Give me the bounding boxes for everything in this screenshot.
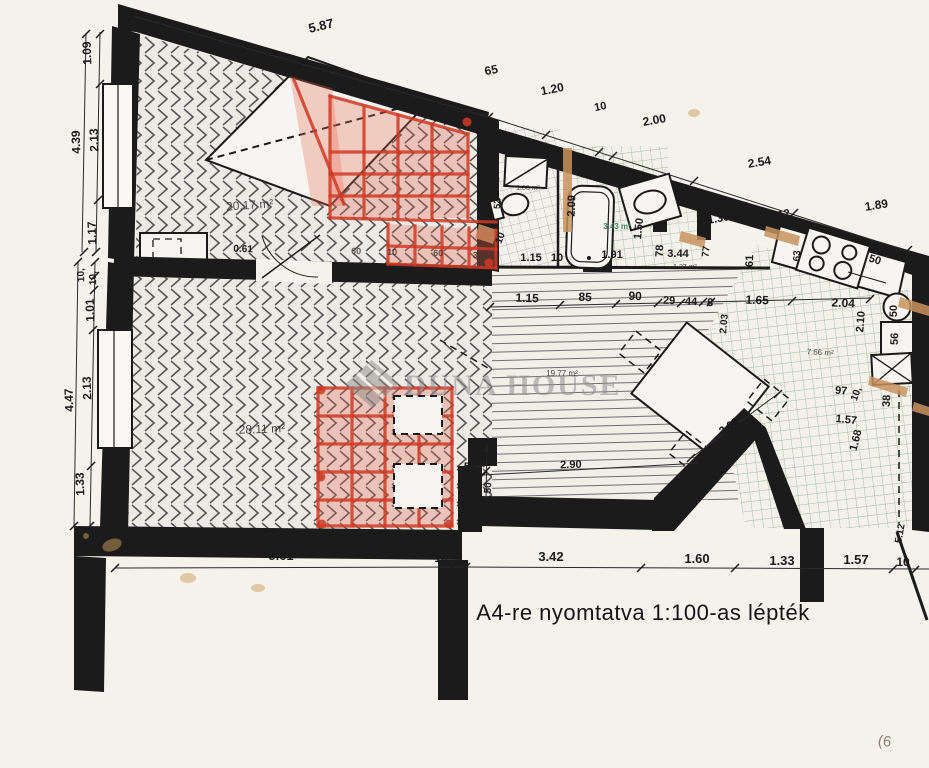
stray-mark: (6 bbox=[877, 732, 893, 751]
wall-right-edge bbox=[912, 254, 929, 532]
room-area-label: 3.43 m² bbox=[603, 222, 631, 231]
room-area-label: 19.77 m² bbox=[546, 369, 578, 378]
dimension-label: 60 bbox=[351, 246, 362, 257]
room-area-label: 7.66 m² bbox=[806, 347, 834, 357]
dimension-label: 2.03 bbox=[718, 313, 731, 334]
dimension-label: 1.33 bbox=[769, 553, 794, 568]
dimension-label: 5.61 bbox=[268, 548, 293, 563]
dimension-label: 1.17 bbox=[85, 221, 100, 245]
dimension-label: 10 bbox=[551, 252, 563, 264]
dimension-label: 1.01 bbox=[83, 298, 98, 322]
wall-bath-dining-line bbox=[483, 267, 770, 268]
dimension-label: 2.04 bbox=[831, 295, 855, 310]
dimension-label: 10, bbox=[88, 271, 99, 285]
dimension-label: 29 bbox=[663, 295, 676, 307]
dimension-label: 38 bbox=[881, 395, 893, 408]
dimension-label: 50 bbox=[888, 305, 900, 317]
wall-stub-bottom-right bbox=[800, 528, 824, 602]
door-opening-mid bbox=[256, 259, 332, 284]
dimension-label: 8 bbox=[707, 297, 714, 309]
wall-stub-bottom-mid bbox=[438, 560, 468, 700]
washbasin-icon bbox=[504, 156, 548, 188]
room-area-label: 1.27 m² bbox=[673, 264, 697, 271]
dimension-label: 56 bbox=[889, 333, 901, 346]
wall-living-right bbox=[458, 466, 482, 532]
dimension-label: 2.90 bbox=[560, 459, 582, 472]
dimension-label: 50 bbox=[483, 482, 494, 494]
dimension-label: 4.39 bbox=[69, 130, 84, 154]
dimension-label: 63 bbox=[792, 250, 803, 262]
room-area-label: 28.11 m² bbox=[238, 421, 285, 437]
room-area-label: 1.66 m² bbox=[516, 185, 540, 192]
window-left-lower bbox=[98, 330, 132, 448]
staircase-lower bbox=[317, 386, 454, 529]
dimension-label: 2.09 bbox=[566, 195, 579, 217]
dimension-label: 77 bbox=[700, 245, 712, 258]
dimension-label: 2.10 bbox=[854, 311, 868, 333]
dimension-label: 2.13 bbox=[80, 376, 95, 400]
dimension-label: 60 bbox=[433, 248, 444, 259]
wall-stub-bottom-left bbox=[74, 556, 106, 692]
dimension-label: 1.65 bbox=[745, 293, 769, 308]
dimension-label: 10 bbox=[434, 551, 448, 565]
scanned-floor-plan-page: DUNA HOUSE 5.87651.20102.002.541.891.361… bbox=[0, 0, 929, 768]
scale-note: A4-re nyomtatva 1:100-as lépték bbox=[476, 600, 810, 625]
dimension-label: 1.15 bbox=[520, 252, 541, 264]
dimension-label: 1.09 bbox=[80, 41, 95, 65]
stair-landing-lower bbox=[394, 464, 442, 508]
watermark-text: DUNA HOUSE bbox=[404, 369, 622, 402]
dimension-label: 10 bbox=[387, 247, 398, 258]
door-threshold-wc bbox=[563, 148, 572, 232]
dimension-label: 2.13 bbox=[87, 128, 102, 152]
dimension-label: 3.44 bbox=[667, 248, 689, 260]
dimension-label: 61 bbox=[744, 255, 756, 268]
dimension-label: 1.57 bbox=[835, 413, 858, 427]
dimension-label: 1.91 bbox=[601, 249, 622, 261]
dimension-label: 3.42 bbox=[538, 549, 563, 564]
dimension-label: 1.60 bbox=[684, 551, 709, 566]
dimension-label: 10 bbox=[896, 555, 910, 569]
dimension-label: 10, bbox=[76, 268, 87, 282]
dimension-label: 1.33 bbox=[73, 472, 88, 496]
dimension-label: 78 bbox=[654, 245, 666, 258]
dimension-label: 4.47 bbox=[62, 388, 77, 412]
dimension-label: 1.50 bbox=[632, 217, 646, 240]
dimension-label: 50 bbox=[481, 452, 492, 464]
dimension-label: 85 bbox=[578, 290, 592, 304]
dimension-label: 3 bbox=[472, 250, 478, 260]
dimension-label: 97 bbox=[835, 385, 848, 398]
dimension-label: 0.61 bbox=[233, 244, 253, 256]
floor-plan-canvas: DUNA HOUSE 5.87651.20102.002.541.891.361… bbox=[0, 0, 929, 768]
dimension-label: 52 bbox=[492, 199, 502, 209]
dimension-label: 1.57 bbox=[843, 552, 868, 567]
dimension-label: 90 bbox=[628, 289, 642, 303]
dimension-label: 1.15 bbox=[515, 291, 539, 306]
wall-bottom-dining bbox=[480, 496, 658, 530]
dimension-label: 10 bbox=[593, 100, 607, 114]
dimension-label: 44 bbox=[685, 296, 699, 308]
dimension-label: 52 bbox=[464, 461, 476, 473]
